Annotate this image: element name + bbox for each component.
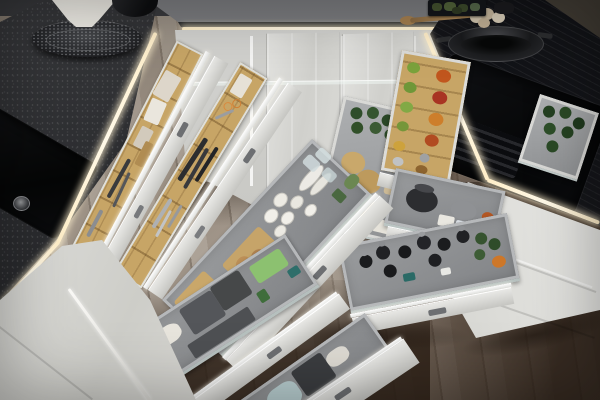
napkin-stack — [229, 73, 252, 99]
napkin-stack — [143, 97, 167, 125]
cutting-board — [248, 248, 289, 284]
bottle — [331, 188, 347, 204]
spice-jar — [419, 153, 430, 164]
herb-leaves — [452, 7, 462, 14]
scissors-blade — [215, 109, 234, 120]
garlic-bulb — [478, 18, 490, 28]
drawer-handle — [428, 307, 447, 316]
green-bottle — [560, 125, 575, 140]
oil-bottle — [375, 244, 391, 260]
bottle — [287, 265, 302, 279]
spice-jar — [392, 156, 404, 167]
oil-bottle — [397, 244, 412, 259]
preserve-jar — [427, 112, 444, 127]
herb-leaves — [470, 3, 480, 11]
bottle — [256, 288, 271, 304]
herb-tray — [428, 0, 486, 16]
cup — [302, 201, 320, 219]
green-bottle — [542, 121, 557, 136]
green-bottle — [474, 232, 488, 246]
oil-bottle — [358, 254, 373, 269]
wine-bottle — [366, 106, 380, 120]
preserve-jar — [431, 90, 448, 105]
led-strip-back — [182, 27, 450, 31]
drawer-handle — [266, 346, 282, 360]
spice-jar — [403, 81, 418, 94]
wire-mesh-plate — [32, 20, 142, 57]
preserve-jar — [435, 68, 452, 83]
oil-bottle — [436, 237, 451, 252]
spice-jar — [393, 140, 407, 152]
green-bottle — [541, 104, 556, 119]
wine-bottle — [350, 121, 364, 135]
spice-jar — [406, 61, 421, 74]
kitchen-photo — [0, 0, 600, 400]
green-bottle — [473, 248, 486, 261]
oil-bottle — [383, 263, 398, 278]
drawer-handle — [312, 265, 327, 281]
label — [403, 272, 416, 282]
green-bottle — [571, 116, 586, 131]
drawer-handle — [194, 225, 206, 239]
spice-jar — [399, 101, 414, 114]
oil-bottle — [455, 229, 470, 244]
plate-rim — [46, 29, 130, 51]
spice-jar — [396, 120, 410, 132]
wine-bottle — [368, 121, 382, 135]
drawer-handle — [242, 147, 256, 164]
preserve-jar — [424, 133, 440, 147]
cup — [261, 206, 281, 227]
sink-drain — [13, 196, 30, 211]
drawer-handle — [133, 204, 144, 219]
label — [440, 267, 451, 276]
wine-bottle — [349, 106, 363, 120]
oil-bottle — [427, 253, 442, 268]
oil-bottle — [416, 234, 432, 250]
drawer-handle — [334, 386, 352, 400]
ladle-head — [494, 2, 514, 14]
wok-inner — [461, 35, 531, 55]
scissors-handle — [231, 97, 243, 109]
wok-pan — [448, 26, 544, 62]
herb-leaves — [432, 3, 442, 11]
green-bottle — [558, 105, 573, 120]
drawer-handle — [176, 121, 189, 138]
utensil — [86, 209, 104, 237]
orange-fruit — [491, 254, 507, 268]
green-bottle — [487, 237, 501, 251]
green-bottle — [545, 139, 560, 154]
